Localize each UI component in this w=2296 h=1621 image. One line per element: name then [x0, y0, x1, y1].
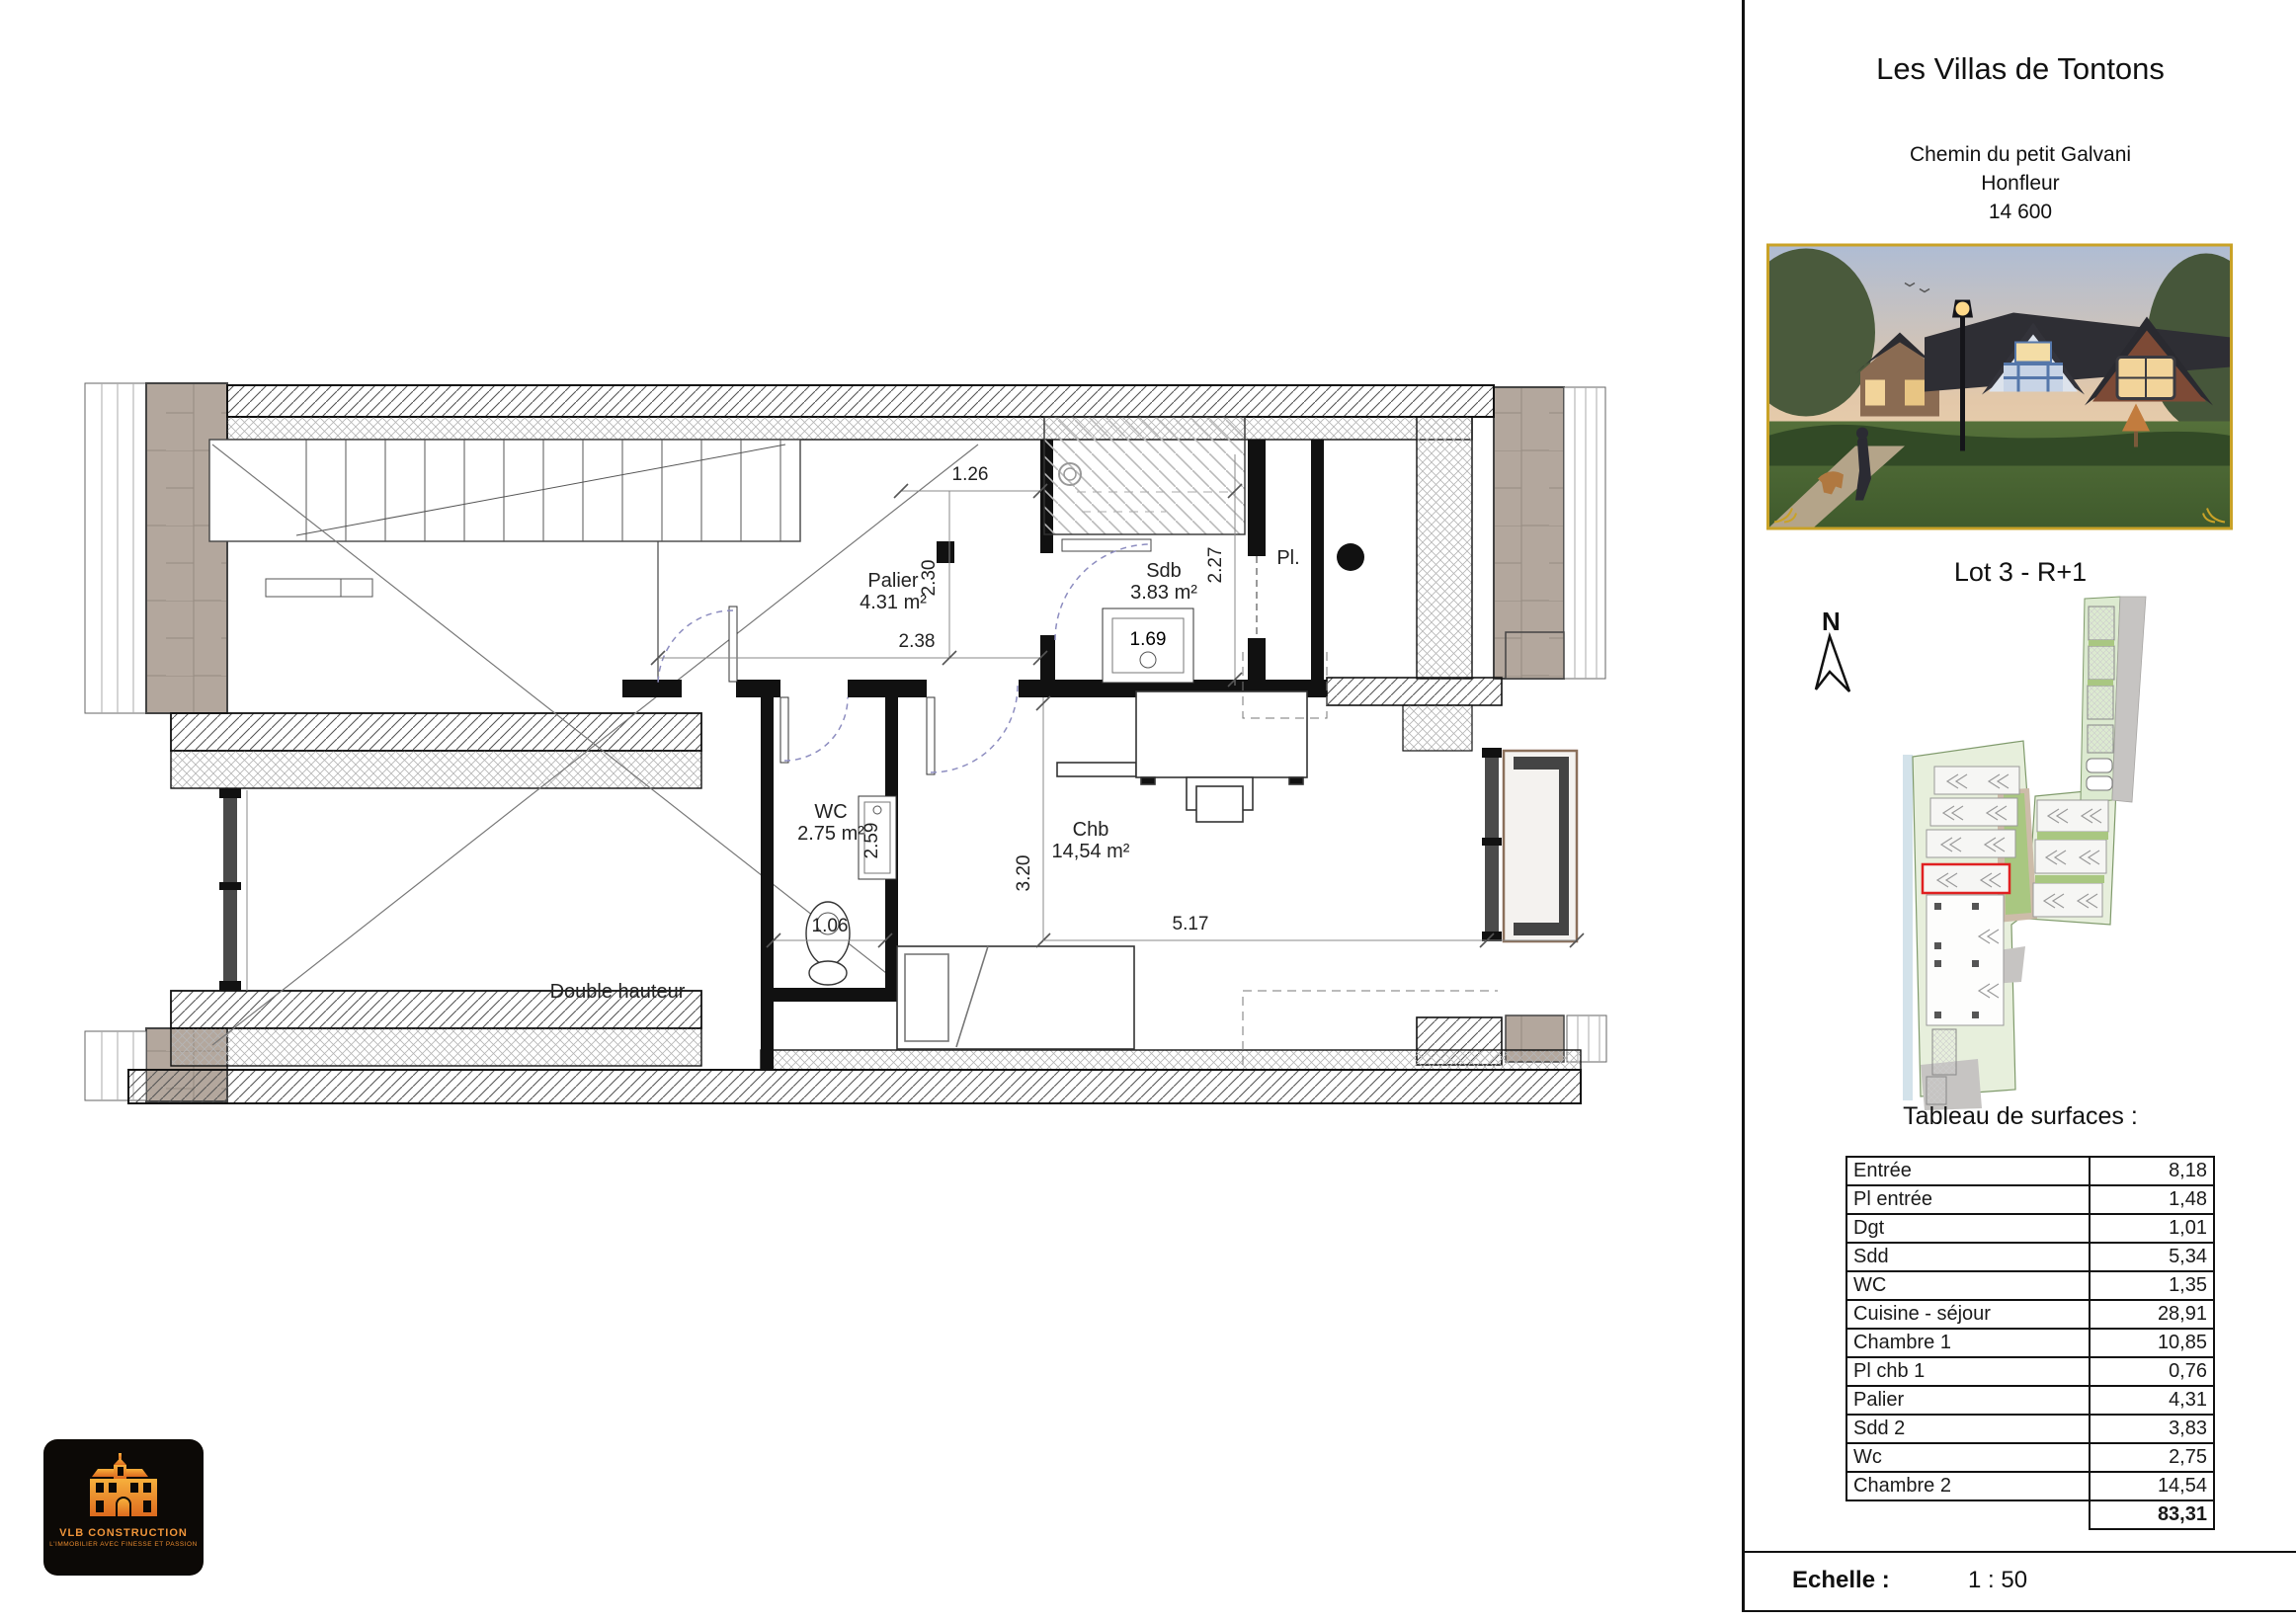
row-label: Chambre 1 — [1846, 1329, 2090, 1357]
row-value: 1,01 — [2090, 1214, 2214, 1243]
shelf-icon — [1057, 763, 1136, 776]
toilet-icon — [806, 902, 850, 985]
company-logo: VLB CONSTRUCTION L'IMMOBILIER AVEC FINES… — [43, 1439, 204, 1576]
room-palier-area: 4.31 m² — [860, 592, 927, 613]
table-row: Pl chb 10,76 — [1846, 1357, 2214, 1386]
floor-plan-drawing: Double hauteur — [0, 0, 1759, 1621]
table-row: Wc2,75 — [1846, 1443, 2214, 1472]
dim-wc-w: 1.06 — [812, 916, 849, 936]
dim-palier-h: 2.30 — [919, 560, 940, 597]
address-line-3: 14 600 — [1745, 198, 2296, 226]
logo-tagline: L'IMMOBILIER AVEC FINESSE ET PASSION — [43, 1541, 204, 1548]
room-sdb-area: 3.83 m² — [1130, 582, 1197, 604]
dim-top: 1.26 — [952, 464, 989, 485]
address-line-2: Honfleur — [1745, 169, 2296, 198]
table-row: Palier4,31 — [1846, 1386, 2214, 1415]
dim-palier-w: 2.38 — [899, 631, 936, 652]
page-title: Les Villas de Tontons — [1745, 51, 2296, 87]
address-line-1: Chemin du petit Galvani — [1745, 140, 2296, 169]
row-label: Chambre 2 — [1846, 1472, 2090, 1500]
room-wc-area: 2.75 m² — [797, 823, 864, 845]
room-palier-name: Palier — [867, 570, 918, 592]
row-value: 4,31 — [2090, 1386, 2214, 1415]
north-label: N — [1822, 607, 1841, 636]
lot-label: Lot 3 - R+1 — [1745, 557, 2296, 588]
table-row: Sdd5,34 — [1846, 1243, 2214, 1271]
row-label: Dgt — [1846, 1214, 2090, 1243]
row-label: WC — [1846, 1271, 2090, 1300]
total-value: 83,31 — [2090, 1500, 2214, 1529]
table-row: WC1,35 — [1846, 1271, 2214, 1300]
row-value: 1,35 — [2090, 1271, 2214, 1300]
surface-table: Entrée8,18 Pl entrée1,48 Dgt1,01 Sdd5,34… — [1845, 1156, 2215, 1530]
row-value: 28,91 — [2090, 1300, 2214, 1329]
panel-divider — [1742, 0, 1745, 1612]
right-facade — [1494, 387, 1606, 1062]
highlighted-lot — [1923, 864, 2009, 893]
row-label: Sdd — [1846, 1243, 2090, 1271]
row-label: Cuisine - séjour — [1846, 1300, 2090, 1329]
shower-icon — [1044, 417, 1245, 534]
mansion-icon — [78, 1451, 169, 1520]
logo-company-name: VLB CONSTRUCTION — [43, 1527, 204, 1539]
room-chb-name: Chb — [1073, 819, 1109, 841]
row-value: 14,54 — [2090, 1472, 2214, 1500]
table-row: Pl entrée1,48 — [1846, 1185, 2214, 1214]
left-window — [219, 788, 247, 991]
double-height-label: Double hauteur — [550, 981, 686, 1003]
table-row: Chambre 214,54 — [1846, 1472, 2214, 1500]
project-address: Chemin du petit Galvani Honfleur 14 600 — [1745, 140, 2296, 226]
table-row: Chambre 110,85 — [1846, 1329, 2214, 1357]
dim-chb-w: 5.17 — [1173, 914, 1209, 934]
upper-strip-units — [2087, 607, 2114, 790]
row-label: Sdd 2 — [1846, 1415, 2090, 1443]
table-row: Entrée8,18 — [1846, 1157, 2214, 1185]
row-label: Pl entrée — [1846, 1185, 2090, 1214]
row-label: Wc — [1846, 1443, 2090, 1472]
room-pl-name: Pl. — [1276, 547, 1299, 569]
room-sdb-name: Sdb — [1146, 560, 1182, 582]
row-label: Pl chb 1 — [1846, 1357, 2090, 1386]
surface-table-title: Tableau de surfaces : — [1745, 1102, 2296, 1131]
north-arrow-icon: N — [1800, 601, 1879, 709]
document-page: Double hauteur — [0, 0, 2296, 1621]
table-row: Cuisine - séjour28,91 — [1846, 1300, 2214, 1329]
scale-label: Echelle : — [1792, 1567, 1890, 1594]
row-label: Entrée — [1846, 1157, 2090, 1185]
site-plan-map — [1887, 591, 2183, 1119]
bed-icon — [897, 946, 1134, 1049]
row-value: 10,85 — [2090, 1329, 2214, 1357]
row-label: Palier — [1846, 1386, 2090, 1415]
row-value: 5,34 — [2090, 1243, 2214, 1271]
row-value: 3,83 — [2090, 1415, 2214, 1443]
row-value: 1,48 — [2090, 1185, 2214, 1214]
residence-rendering-photo — [1766, 243, 2233, 530]
staircase — [209, 440, 800, 541]
bay-window — [1482, 748, 1577, 941]
column-dot — [1337, 543, 1364, 571]
room-wc-name: WC — [814, 801, 847, 823]
dim-wc-h: 2.59 — [861, 823, 882, 859]
dim-basin: 1.69 — [1130, 629, 1167, 650]
row-value: 2,75 — [2090, 1443, 2214, 1472]
scale-value: 1 : 50 — [1968, 1567, 2027, 1594]
table-row: Sdd 23,83 — [1846, 1415, 2214, 1443]
bedroom-furniture — [897, 691, 1307, 1049]
row-value: 0,76 — [2090, 1357, 2214, 1386]
dim-sdb-h: 2.27 — [1205, 547, 1226, 584]
table-row: Dgt1,01 — [1846, 1214, 2214, 1243]
row-value: 8,18 — [2090, 1157, 2214, 1185]
table-total-row: 83,31 — [1846, 1500, 2214, 1529]
dim-chb-h: 3.20 — [1014, 855, 1034, 892]
desk-icon — [1136, 691, 1307, 777]
room-chb-area: 14,54 m² — [1052, 841, 1130, 862]
right-units — [2033, 800, 2108, 917]
scale-bar: Echelle : 1 : 50 — [1745, 1551, 2296, 1612]
